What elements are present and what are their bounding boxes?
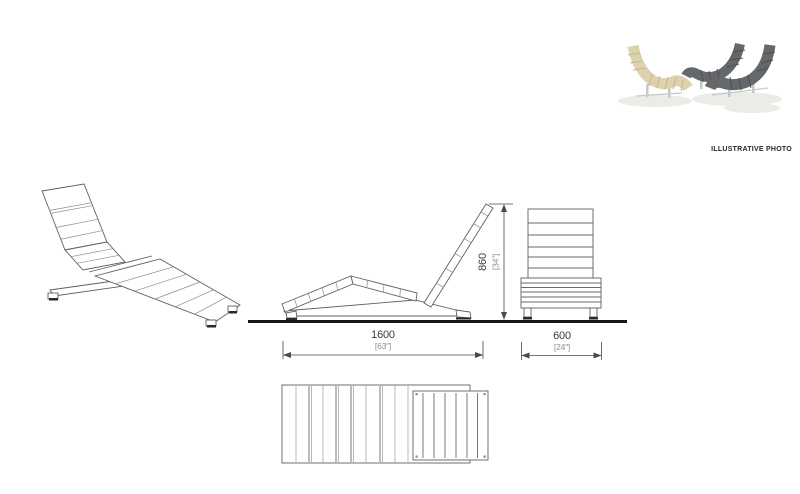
side-frame [284,300,464,316]
front-foot-right [590,308,597,317]
front-foot-left [524,308,531,317]
dimension-width: 600 [24″] [522,330,602,360]
top-view [282,385,488,463]
length-imperial: [63″] [375,341,391,351]
front-view [521,209,601,320]
dimension-length: 1600 [63″] [283,329,483,359]
product-drawing-sheet: ILLUSTRATIVE PHOTO [0,0,800,494]
photo-label: ILLUSTRATIVE PHOTO [711,146,792,153]
length-value: 1600 [371,329,395,341]
side-view [282,204,493,320]
height-imperial: [34″] [491,254,501,270]
perspective-view [42,184,240,328]
width-imperial: [24″] [554,342,570,352]
photo-shadow-front [724,103,780,113]
drawing-canvas: ILLUSTRATIVE PHOTO [0,0,800,494]
top-backrest-overlay [413,391,488,460]
illustrative-photo: ILLUSTRATIVE PHOTO [618,44,792,153]
width-value: 600 [553,330,571,342]
photo-shadow-left [618,95,692,107]
ground-line [248,320,627,323]
side-foot-right [456,310,471,318]
front-base [521,278,601,308]
height-value: 860 [477,253,489,271]
photo-beige-lounger [628,46,688,98]
perspective-backrest [42,184,107,250]
